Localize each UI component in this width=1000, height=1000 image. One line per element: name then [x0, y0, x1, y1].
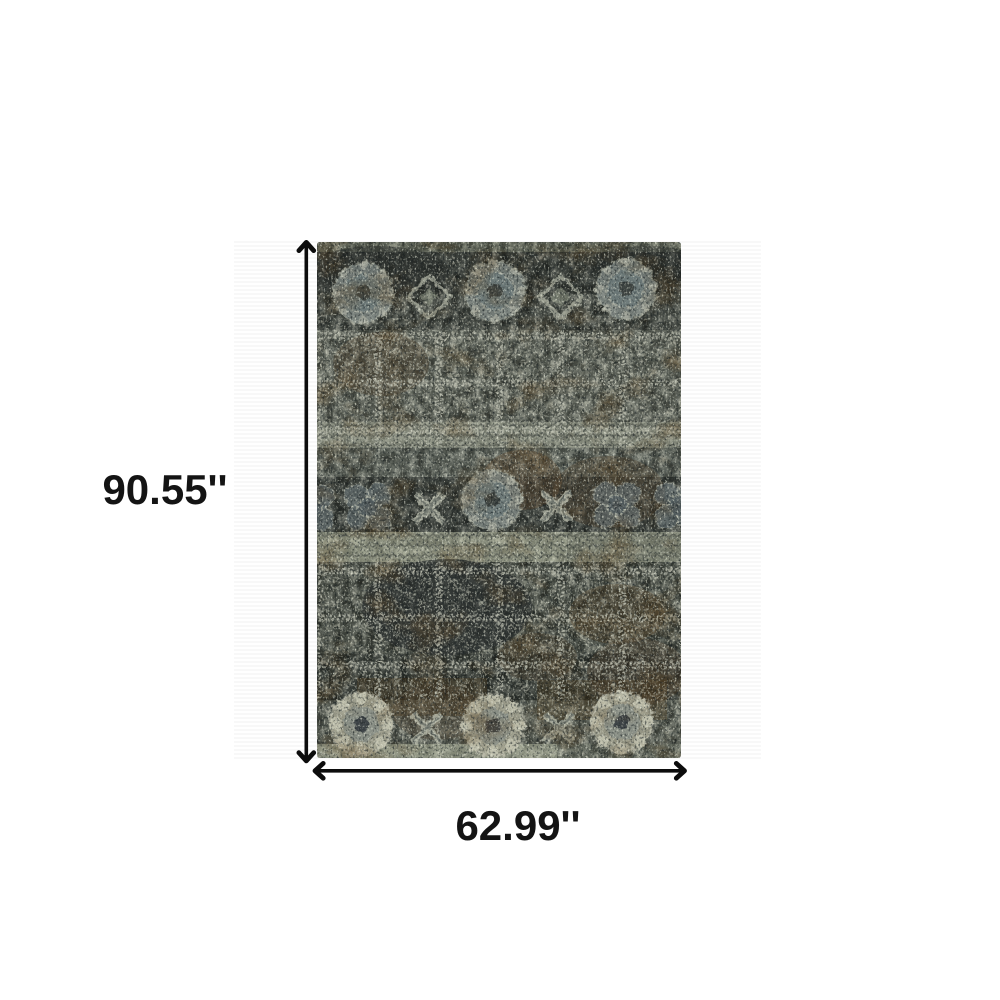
svg-text:90.55'': 90.55''	[102, 466, 227, 513]
svg-text:62.99'': 62.99''	[455, 802, 580, 849]
